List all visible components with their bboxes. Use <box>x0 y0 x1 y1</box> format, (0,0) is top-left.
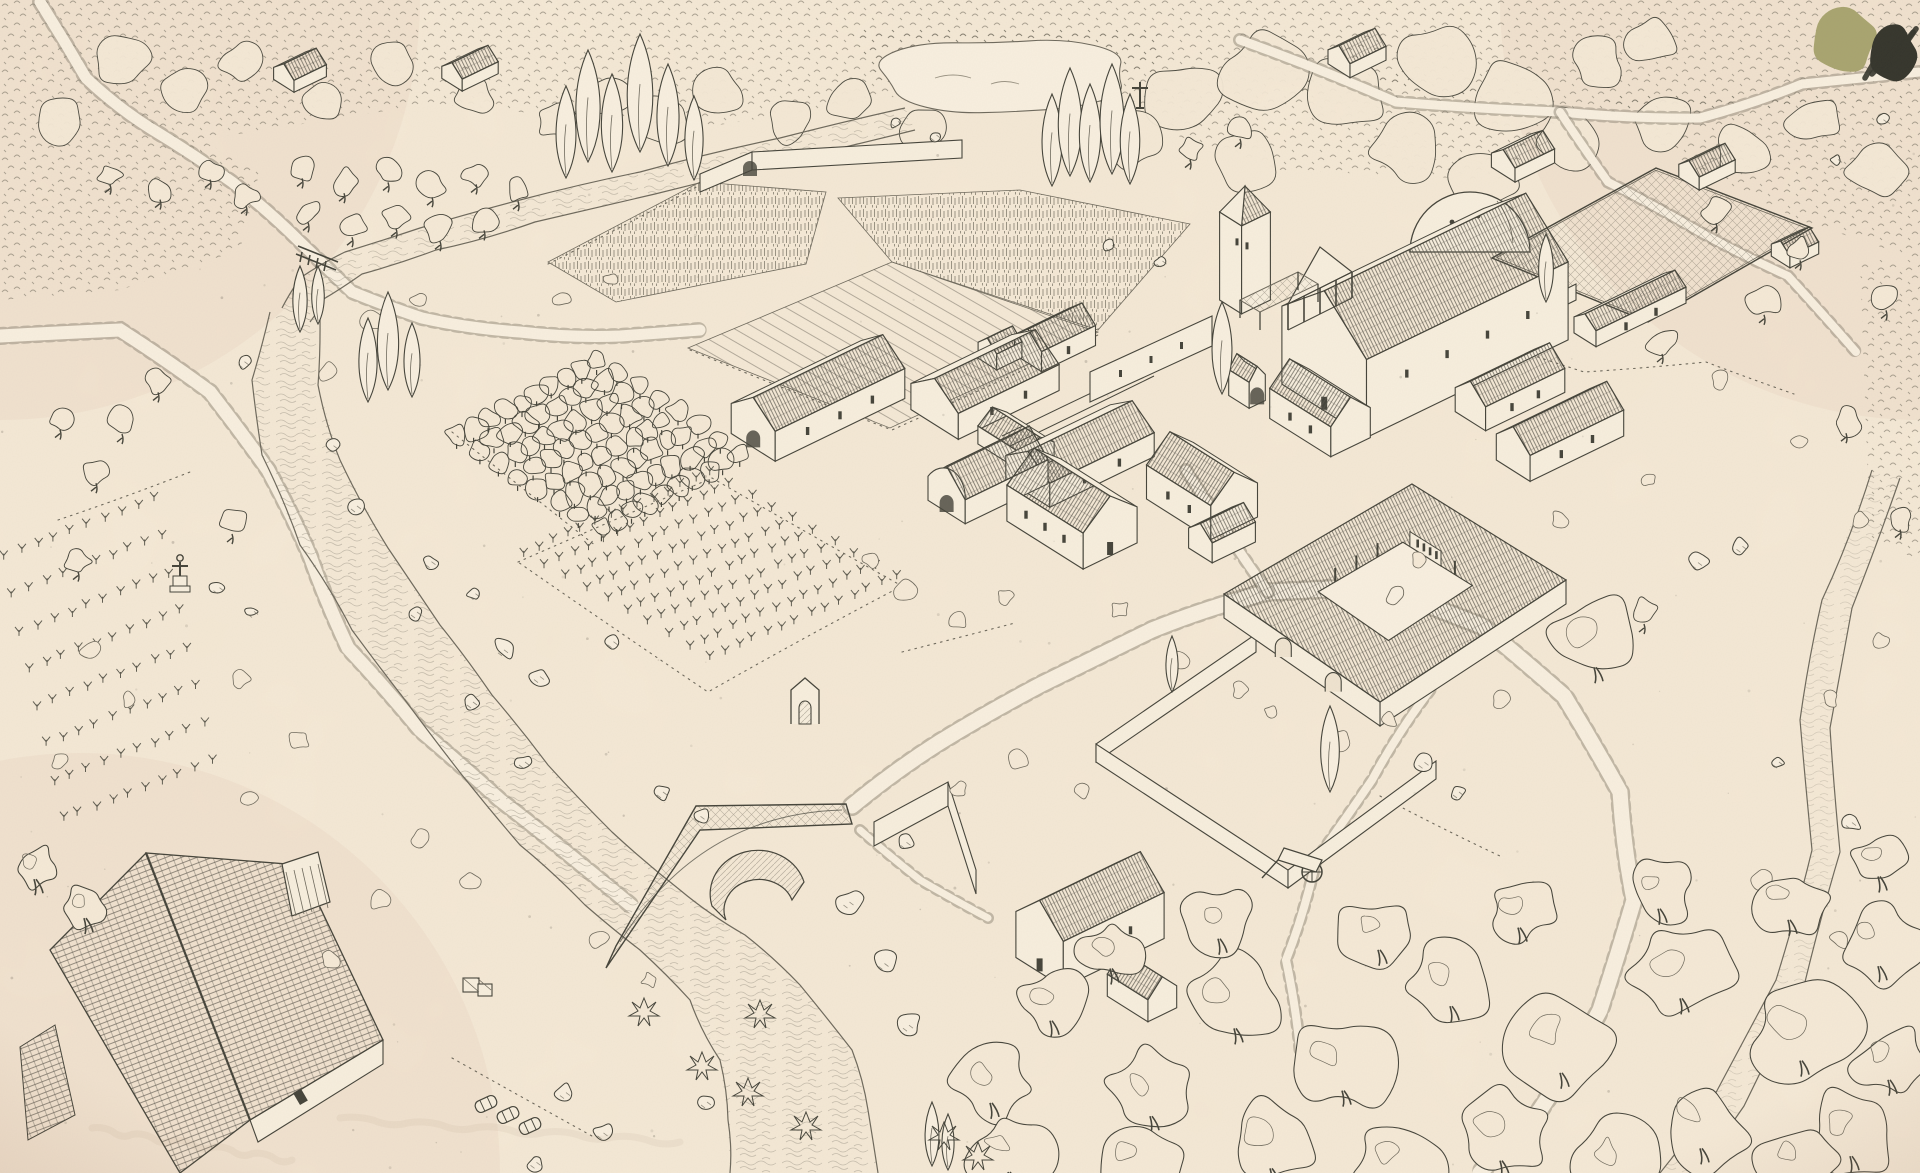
illustration-layers <box>0 0 1920 1173</box>
paper-finish <box>0 0 1920 1173</box>
villa-estate-illustration: Hand-drawn ink aerial reconstruction of … <box>0 0 1920 1173</box>
illustration-stage: Hand-drawn ink aerial reconstruction of … <box>0 0 1920 1173</box>
